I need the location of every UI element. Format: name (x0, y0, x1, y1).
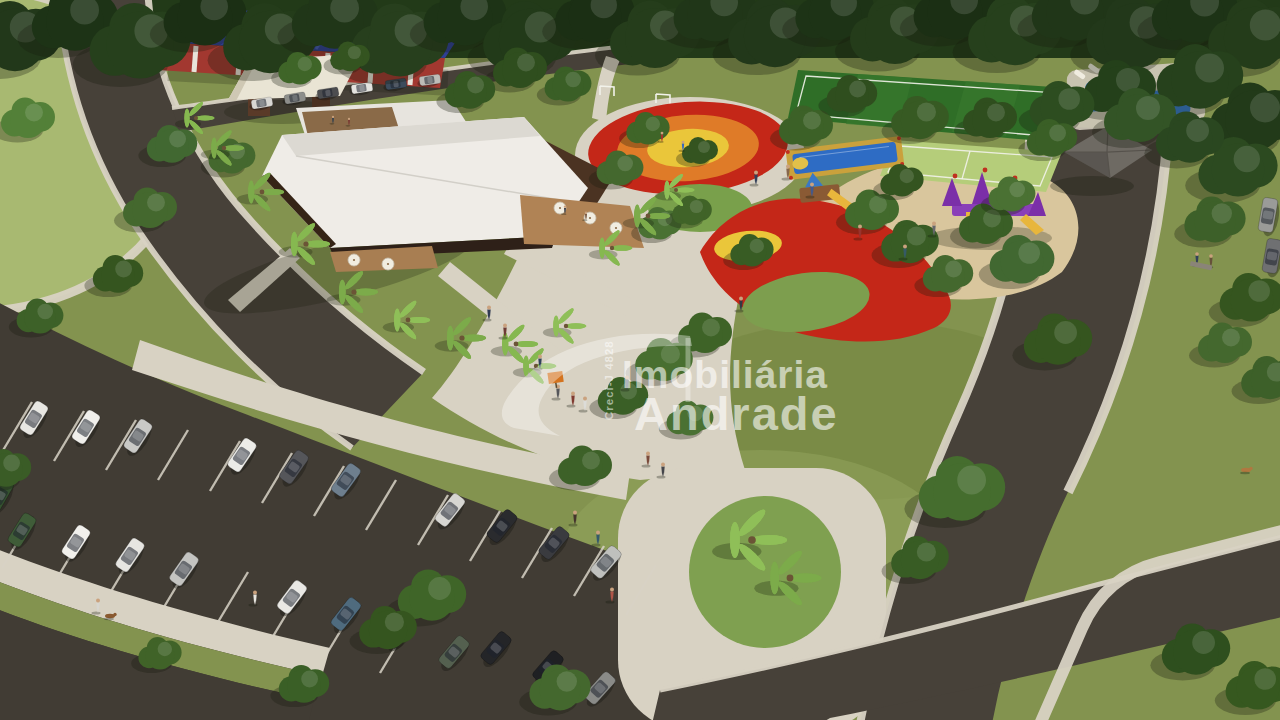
aerial-render: Creci-J 4828 Imobiliária Andrade (0, 0, 1280, 720)
patio-umbrella (382, 258, 394, 270)
watermark-registration: Creci-J 4828 (603, 340, 615, 420)
watermark-brand-line2: Andrade (634, 387, 839, 440)
patio-umbrella (348, 254, 360, 266)
palm-island-grass (689, 496, 841, 648)
